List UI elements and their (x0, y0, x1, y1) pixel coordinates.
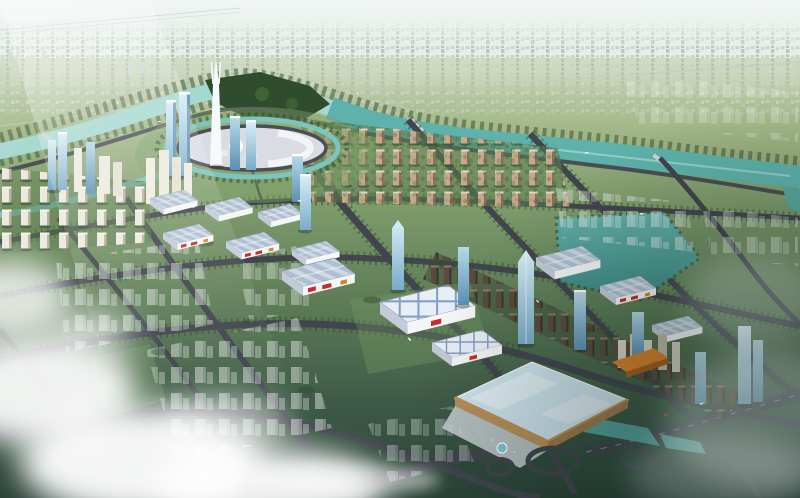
aerial-rendering (0, 0, 800, 498)
scene-canvas (0, 0, 800, 498)
